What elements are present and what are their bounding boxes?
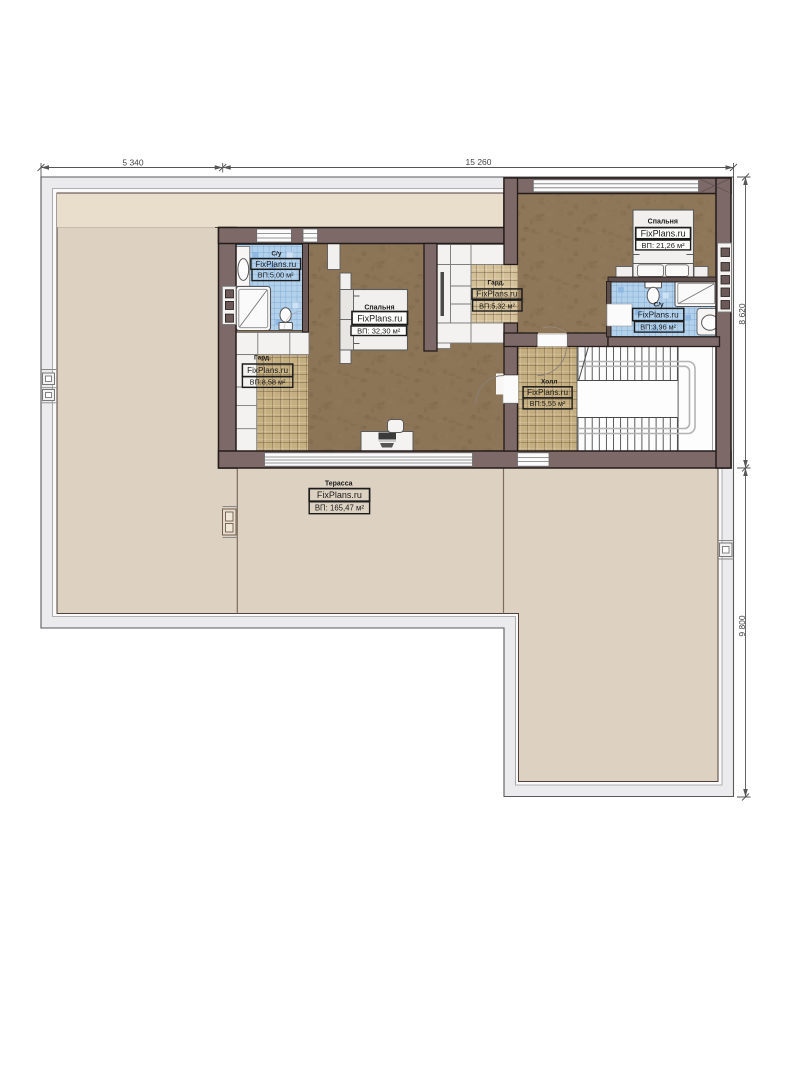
svg-text:ВП:5,00 м²: ВП:5,00 м² [258, 271, 294, 280]
svg-text:Спальня: Спальня [648, 218, 678, 225]
svg-text:FixPlans.ru: FixPlans.ru [357, 313, 402, 323]
svg-text:ВП: 32,30 м²: ВП: 32,30 м² [357, 327, 401, 336]
svg-text:ВП:3,96 м²: ВП:3,96 м² [640, 323, 676, 332]
svg-text:Гард.: Гард. [488, 280, 505, 287]
svg-text:С/у: С/у [654, 302, 665, 309]
svg-text:ВП: 165,47 м²: ВП: 165,47 м² [315, 504, 365, 513]
svg-text:FixPlans.ru: FixPlans.ru [638, 310, 679, 319]
svg-text:FixPlans.ru: FixPlans.ru [255, 260, 296, 269]
svg-text:Холл: Холл [541, 379, 557, 386]
svg-text:ВП:5,55 м²: ВП:5,55 м² [530, 399, 566, 408]
svg-text:9 800: 9 800 [737, 615, 747, 637]
svg-text:ВП:8,58 м²: ВП:8,58 м² [250, 378, 286, 387]
svg-text:8 620: 8 620 [737, 303, 747, 325]
svg-text:Гард.: Гард. [254, 355, 271, 362]
svg-text:ВП:5,32 м²: ВП:5,32 м² [479, 301, 515, 310]
svg-text:FixPlans.ru: FixPlans.ru [317, 490, 362, 500]
svg-text:С/у: С/у [271, 251, 282, 258]
svg-text:Спальня: Спальня [364, 305, 394, 312]
svg-text:15 260: 15 260 [466, 157, 492, 167]
svg-text:ВП: 21,26 м²: ВП: 21,26 м² [642, 241, 686, 250]
svg-text:FixPlans.ru: FixPlans.ru [527, 388, 568, 397]
svg-text:Терасса: Терасса [325, 481, 353, 488]
svg-text:5 340: 5 340 [122, 158, 144, 168]
svg-text:FixPlans.ru: FixPlans.ru [641, 229, 686, 239]
svg-text:FixPlans.ru: FixPlans.ru [477, 290, 518, 299]
svg-text:FixPlans.ru: FixPlans.ru [247, 366, 288, 375]
